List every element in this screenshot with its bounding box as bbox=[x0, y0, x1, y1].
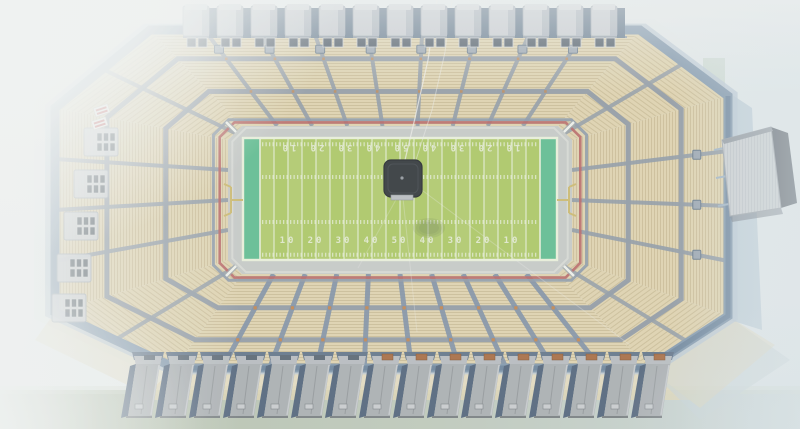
suite-window bbox=[459, 38, 468, 47]
section-marker bbox=[492, 338, 495, 341]
yard-number: 10 bbox=[504, 236, 521, 246]
yard-number-inverted: 40 bbox=[364, 142, 381, 152]
yard-number-inverted: 20 bbox=[308, 142, 325, 152]
section-marker bbox=[406, 338, 409, 341]
roof-box-gap bbox=[447, 8, 455, 38]
side-box-window bbox=[90, 227, 95, 235]
section-marker bbox=[502, 90, 505, 93]
roof-box-gap bbox=[549, 8, 557, 38]
suite-window bbox=[595, 38, 604, 47]
gate-plaque bbox=[509, 404, 517, 409]
jumbotron-base bbox=[391, 195, 413, 200]
roof-box-gap bbox=[583, 8, 591, 38]
gate-plaque bbox=[305, 404, 313, 409]
roof-box-shade bbox=[202, 6, 209, 36]
gate-door-top bbox=[382, 354, 393, 360]
side-box-window bbox=[100, 175, 105, 183]
section-marker bbox=[328, 306, 331, 309]
roof-box-shade bbox=[338, 6, 345, 36]
suite-window bbox=[402, 38, 411, 47]
roof-box-cap bbox=[593, 4, 615, 10]
suite-window bbox=[470, 38, 479, 47]
section-marker bbox=[376, 90, 379, 93]
roof-box-cap bbox=[287, 4, 309, 10]
roof-box-shade bbox=[576, 6, 583, 36]
section-marker bbox=[254, 306, 257, 309]
gate-door-top bbox=[518, 354, 529, 360]
vomitory bbox=[693, 250, 701, 259]
gate-door-top bbox=[450, 354, 461, 360]
side-box-body bbox=[52, 294, 86, 322]
game-viewport[interactable]: 10 20 30 40 50 40 30 20 10 10 20 30 40 5… bbox=[0, 0, 800, 429]
section-marker bbox=[440, 306, 443, 309]
side-box-window bbox=[97, 133, 102, 141]
roof-box-gap bbox=[379, 8, 387, 38]
section-marker bbox=[514, 306, 517, 309]
suite-window bbox=[368, 38, 377, 47]
suite-window bbox=[538, 38, 547, 47]
suite-window bbox=[606, 38, 615, 47]
stadium-render: 10 20 30 40 50 40 30 20 10 10 20 30 40 5… bbox=[0, 0, 800, 429]
roof-box-cap bbox=[185, 4, 207, 10]
roof-box-gap bbox=[243, 8, 251, 38]
roof-box-cap bbox=[321, 4, 343, 10]
gate-door-top bbox=[552, 354, 563, 360]
section-marker bbox=[292, 90, 295, 93]
side-box-window bbox=[104, 143, 109, 151]
gate-plaque bbox=[577, 404, 585, 409]
suite-window bbox=[391, 38, 400, 47]
gate-door-top bbox=[654, 354, 665, 360]
gate-vent-top bbox=[212, 355, 223, 360]
roof-box-shade bbox=[270, 6, 277, 36]
roof-box-cap bbox=[253, 4, 275, 10]
jumbotron bbox=[384, 160, 422, 200]
suite-window bbox=[289, 38, 298, 47]
yard-number-inverted: 40 bbox=[420, 142, 437, 152]
yard-number: 50 bbox=[392, 236, 409, 246]
yard-number: 10 bbox=[280, 236, 297, 246]
roof-box-cap bbox=[559, 4, 581, 10]
side-box-window bbox=[104, 133, 109, 141]
gate-vent-top bbox=[348, 355, 359, 360]
suite-window bbox=[436, 38, 445, 47]
section-marker bbox=[236, 338, 239, 341]
side-box-body bbox=[84, 128, 118, 156]
roof-box-shade bbox=[440, 6, 447, 36]
gate-plaque bbox=[645, 404, 653, 409]
side-box-window bbox=[94, 185, 99, 193]
yard-number: 30 bbox=[448, 236, 465, 246]
roof-box-cap bbox=[389, 4, 411, 10]
section-marker bbox=[322, 58, 325, 61]
section-marker bbox=[577, 338, 580, 341]
gate-door-top bbox=[586, 354, 597, 360]
section-marker bbox=[225, 58, 228, 61]
side-box-window bbox=[70, 269, 75, 277]
yard-number-inverted: 10 bbox=[504, 142, 521, 152]
vomitory bbox=[693, 200, 701, 209]
yard-number-inverted: 30 bbox=[448, 142, 465, 152]
section-marker bbox=[250, 90, 253, 93]
gate-plaque bbox=[373, 404, 381, 409]
yard-number-inverted: 20 bbox=[476, 142, 493, 152]
section-marker bbox=[279, 338, 282, 341]
gate-plaque bbox=[611, 404, 619, 409]
roof-box-shade bbox=[406, 6, 413, 36]
roof-box-gap bbox=[345, 8, 353, 38]
section-marker bbox=[420, 58, 423, 61]
yard-number-inverted: 10 bbox=[280, 142, 297, 152]
roof-box-gap bbox=[515, 8, 523, 38]
suite-window bbox=[357, 38, 366, 47]
yard-number: 40 bbox=[364, 236, 381, 246]
side-box-body bbox=[57, 254, 91, 282]
roof-box-gap bbox=[481, 8, 489, 38]
roof-box-cap bbox=[491, 4, 513, 10]
gate-plaque bbox=[271, 404, 279, 409]
gate-vent-top bbox=[178, 355, 189, 360]
gate-vent-top bbox=[314, 355, 325, 360]
gate-vent-top bbox=[246, 355, 257, 360]
roof-box-gap bbox=[311, 8, 319, 38]
gate-plaque bbox=[169, 404, 177, 409]
yard-number: 30 bbox=[336, 236, 353, 246]
suite-window bbox=[300, 38, 309, 47]
gate-plaque bbox=[407, 404, 415, 409]
section-marker bbox=[371, 58, 374, 61]
side-box-window bbox=[94, 175, 99, 183]
gate-door-top bbox=[416, 354, 427, 360]
section-marker bbox=[365, 306, 368, 309]
side-box-body bbox=[74, 170, 108, 198]
suite-window bbox=[572, 38, 581, 47]
vomitory bbox=[518, 45, 527, 53]
section-marker bbox=[468, 58, 471, 61]
gate-door-top bbox=[620, 354, 631, 360]
suite-window bbox=[493, 38, 502, 47]
yard-number: 20 bbox=[308, 236, 325, 246]
suite-window bbox=[334, 38, 343, 47]
roof-box-cap bbox=[457, 4, 479, 10]
roof-box-cap bbox=[219, 4, 241, 10]
roof-box-gap bbox=[617, 8, 625, 38]
section-marker bbox=[449, 338, 452, 341]
suite-window bbox=[187, 38, 196, 47]
side-box-window bbox=[77, 217, 82, 225]
side-box-window bbox=[90, 217, 95, 225]
section-marker bbox=[334, 90, 337, 93]
endzone-west bbox=[243, 138, 260, 260]
suite-window bbox=[255, 38, 264, 47]
roof-box-cap bbox=[525, 4, 547, 10]
suite-window bbox=[232, 38, 241, 47]
roof-box-shade bbox=[304, 6, 311, 36]
section-marker bbox=[403, 306, 406, 309]
side-box-window bbox=[78, 309, 83, 317]
vomitory bbox=[417, 45, 426, 53]
gate-plaque bbox=[339, 404, 347, 409]
endzone-east bbox=[540, 138, 557, 260]
gate-vent-top bbox=[280, 355, 291, 360]
side-box-window bbox=[77, 259, 82, 267]
side-box-window bbox=[84, 227, 89, 235]
side-box-window bbox=[72, 309, 77, 317]
roof-box-shade bbox=[508, 6, 515, 36]
side-box-window bbox=[110, 143, 115, 151]
gate-plaque bbox=[237, 404, 245, 409]
side-box-window bbox=[87, 175, 92, 183]
roof-box-shade bbox=[372, 6, 379, 36]
yard-number-inverted: 30 bbox=[336, 142, 353, 152]
section-marker bbox=[274, 58, 277, 61]
side-box-window bbox=[100, 185, 105, 193]
yard-number-inverted: 50 bbox=[392, 142, 409, 152]
section-marker bbox=[544, 90, 547, 93]
section-marker bbox=[565, 58, 568, 61]
side-box bbox=[52, 294, 86, 322]
gate-plaque bbox=[135, 404, 143, 409]
section-marker bbox=[552, 306, 555, 309]
roof-box-shade bbox=[610, 6, 617, 36]
suite-window bbox=[221, 38, 230, 47]
roof-box-shade bbox=[542, 6, 549, 36]
gate-vent-top bbox=[144, 355, 155, 360]
gate-plaque bbox=[441, 404, 449, 409]
section-marker bbox=[460, 90, 463, 93]
side-box bbox=[64, 212, 98, 240]
side-box-window bbox=[87, 185, 92, 193]
side-box-window bbox=[77, 269, 82, 277]
side-box-body bbox=[64, 212, 98, 240]
section-marker bbox=[364, 338, 367, 341]
gate-door-top bbox=[484, 354, 495, 360]
suite-window bbox=[425, 38, 434, 47]
gate-plaque bbox=[203, 404, 211, 409]
roof-box-cap bbox=[355, 4, 377, 10]
roof-box-gap bbox=[413, 8, 421, 38]
vomitory bbox=[693, 150, 701, 159]
side-box-window bbox=[70, 259, 75, 267]
suite-window bbox=[561, 38, 570, 47]
section-marker bbox=[534, 338, 537, 341]
suite-window bbox=[266, 38, 275, 47]
side-box-window bbox=[84, 217, 89, 225]
side-box-window bbox=[83, 269, 88, 277]
roof-box-shade bbox=[474, 6, 481, 36]
roof-box-shade bbox=[236, 6, 243, 36]
section-marker bbox=[321, 338, 324, 341]
side-box bbox=[84, 128, 118, 156]
side-box bbox=[57, 254, 91, 282]
roof-box-gap bbox=[209, 8, 217, 38]
side-box-window bbox=[65, 309, 70, 317]
gate-plaque bbox=[475, 404, 483, 409]
suite-window bbox=[198, 38, 207, 47]
side-box-window bbox=[72, 299, 77, 307]
side-box-window bbox=[97, 143, 102, 151]
jumbotron-shadow bbox=[419, 222, 439, 234]
side-box-window bbox=[77, 227, 82, 235]
roof-box-gap bbox=[277, 8, 285, 38]
side-box bbox=[74, 170, 108, 198]
section-marker bbox=[517, 58, 520, 61]
side-box-window bbox=[65, 299, 70, 307]
gate-plaque bbox=[543, 404, 551, 409]
section-marker bbox=[291, 306, 294, 309]
side-box-window bbox=[78, 299, 83, 307]
side-box-window bbox=[110, 133, 115, 141]
jumbotron-light bbox=[400, 176, 403, 179]
suite-window bbox=[323, 38, 332, 47]
mow-stripe bbox=[260, 139, 274, 259]
section-marker bbox=[477, 306, 480, 309]
suite-window bbox=[527, 38, 536, 47]
roof-box-cap bbox=[423, 4, 445, 10]
suite-window bbox=[504, 38, 513, 47]
side-box-window bbox=[83, 259, 88, 267]
